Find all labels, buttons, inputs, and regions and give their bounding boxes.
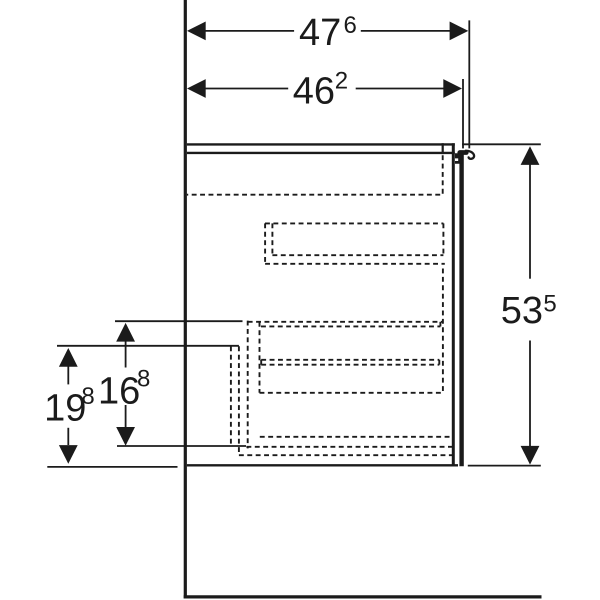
svg-text:53: 53 — [501, 290, 543, 332]
svg-text:5: 5 — [543, 290, 556, 317]
svg-text:16: 16 — [98, 371, 140, 413]
svg-text:47: 47 — [299, 12, 341, 54]
svg-text:8: 8 — [81, 383, 94, 410]
svg-text:8: 8 — [137, 365, 150, 392]
svg-text:6: 6 — [344, 12, 357, 39]
svg-text:46: 46 — [293, 71, 335, 113]
svg-text:2: 2 — [335, 68, 348, 95]
svg-text:19: 19 — [44, 388, 86, 430]
